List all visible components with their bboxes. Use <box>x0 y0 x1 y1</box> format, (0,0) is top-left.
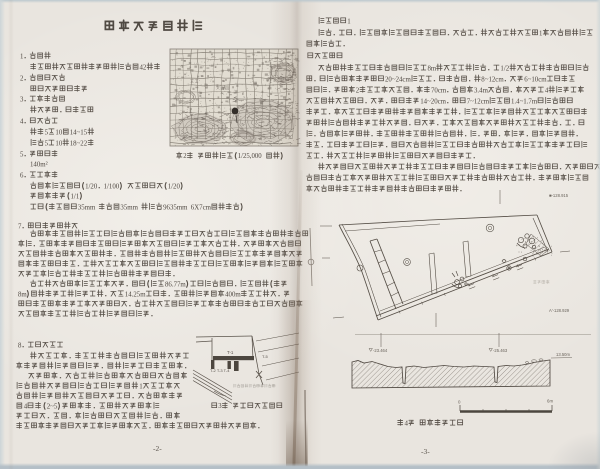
svg-text:7: 7 <box>18 223 22 230</box>
svg-text:3: 3 <box>218 403 222 410</box>
svg-text:4: 4 <box>405 419 409 427</box>
svg-text:2: 2 <box>183 153 186 160</box>
svg-text:1: 1 <box>139 383 143 390</box>
svg-text:1/1: 1/1 <box>71 193 80 200</box>
svg-text:-23.464: -23.464 <box>373 348 388 353</box>
svg-text:-25.463: -25.463 <box>493 348 508 353</box>
svg-text:13.50m: 13.50m <box>556 352 570 357</box>
svg-text:42: 42 <box>140 64 147 71</box>
svg-text:14~20cm: 14~20cm <box>420 98 446 105</box>
svg-text:35mm: 35mm <box>120 204 138 211</box>
svg-text:1: 1 <box>347 18 351 25</box>
svg-text:T-5: T-5 <box>262 354 269 359</box>
svg-text:1/20: 1/20 <box>85 183 98 190</box>
svg-text:1/100: 1/100 <box>104 183 120 190</box>
svg-text:400m: 400m <box>225 291 241 298</box>
svg-text:1/2: 1/2 <box>500 65 509 72</box>
svg-text:10: 10 <box>55 140 62 147</box>
svg-text:8m: 8m <box>428 65 437 72</box>
svg-text:T-2 T-3 T-4: T-2 T-3 T-4 <box>210 368 230 373</box>
svg-text:1/20: 1/20 <box>168 183 181 190</box>
svg-text:8: 8 <box>18 342 22 349</box>
svg-text:1: 1 <box>20 53 24 60</box>
svg-text:0: 0 <box>458 400 461 405</box>
svg-text:-3-: -3- <box>421 447 430 456</box>
svg-text:7~12cm: 7~12cm <box>467 98 490 105</box>
svg-text:4: 4 <box>24 403 28 410</box>
svg-text:10: 10 <box>55 129 62 136</box>
svg-text:14~15: 14~15 <box>70 129 88 136</box>
svg-text:8~12cm: 8~12cm <box>481 76 504 83</box>
svg-text:5: 5 <box>45 140 49 147</box>
svg-text:140m²: 140m² <box>30 161 48 168</box>
svg-text:2: 2 <box>20 75 24 82</box>
svg-text:3: 3 <box>20 96 24 103</box>
svg-text:5: 5 <box>20 151 24 158</box>
svg-text:4: 4 <box>20 118 24 125</box>
svg-text:6: 6 <box>20 172 24 179</box>
svg-text:14.25m: 14.25m <box>125 291 146 298</box>
svg-text:■-128.915: ■-128.915 <box>549 193 569 198</box>
svg-text:-2-: -2- <box>153 444 162 453</box>
svg-text:A'-128.929: A'-128.929 <box>549 308 570 313</box>
svg-text:18~22: 18~22 <box>70 140 88 147</box>
svg-text:1: 1 <box>539 30 543 37</box>
svg-text:86.77m: 86.77m <box>165 281 186 288</box>
svg-text:9635mm: 9635mm <box>163 204 188 211</box>
svg-text:35mm: 35mm <box>78 204 96 211</box>
svg-text:2: 2 <box>356 87 360 94</box>
svg-text:3.4m: 3.4m <box>474 87 489 94</box>
svg-text:T-1: T-1 <box>227 350 234 355</box>
svg-text:20~24cm: 20~24cm <box>385 76 411 83</box>
svg-text:8m: 8m <box>18 291 27 298</box>
svg-text:5: 5 <box>45 129 49 136</box>
svg-text:6X7cm: 6X7cm <box>191 204 212 211</box>
svg-text:1.4~1.7m: 1.4~1.7m <box>511 98 538 105</box>
svg-text:1/25,000: 1/25,000 <box>238 153 262 160</box>
svg-text:70cm: 70cm <box>431 87 447 94</box>
svg-text:6m: 6m <box>547 399 553 404</box>
svg-text:6~10cm: 6~10cm <box>524 76 547 83</box>
svg-text:2~5: 2~5 <box>47 403 58 410</box>
svg-text:4: 4 <box>545 87 549 94</box>
